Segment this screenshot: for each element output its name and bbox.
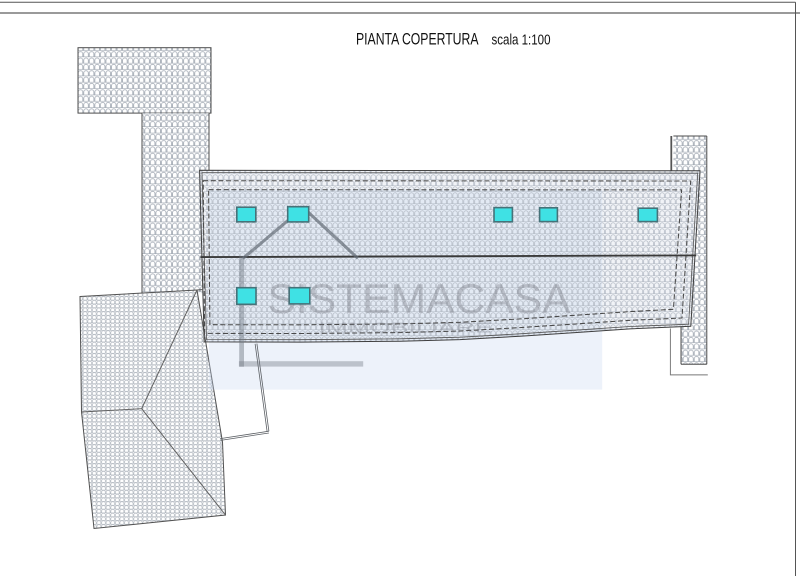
svg-text:scala 1:100: scala 1:100 bbox=[492, 32, 551, 49]
svg-text:PIANTA COPERTURA: PIANTA COPERTURA bbox=[356, 30, 479, 49]
svg-text:SISTEMACASA: SISTEMACASA bbox=[268, 275, 571, 322]
svg-text:IMMOBILIARE: IMMOBILIARE bbox=[319, 321, 493, 337]
